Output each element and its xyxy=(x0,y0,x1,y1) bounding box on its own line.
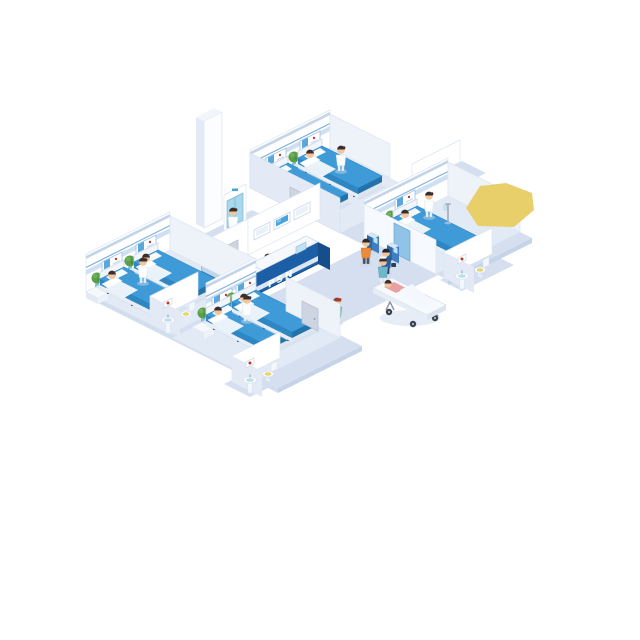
stretcher xyxy=(373,278,446,327)
elevator xyxy=(196,108,246,236)
hospital-illustration: PSN xyxy=(0,0,640,640)
isometric-hospital-scene: PSN xyxy=(0,0,640,640)
